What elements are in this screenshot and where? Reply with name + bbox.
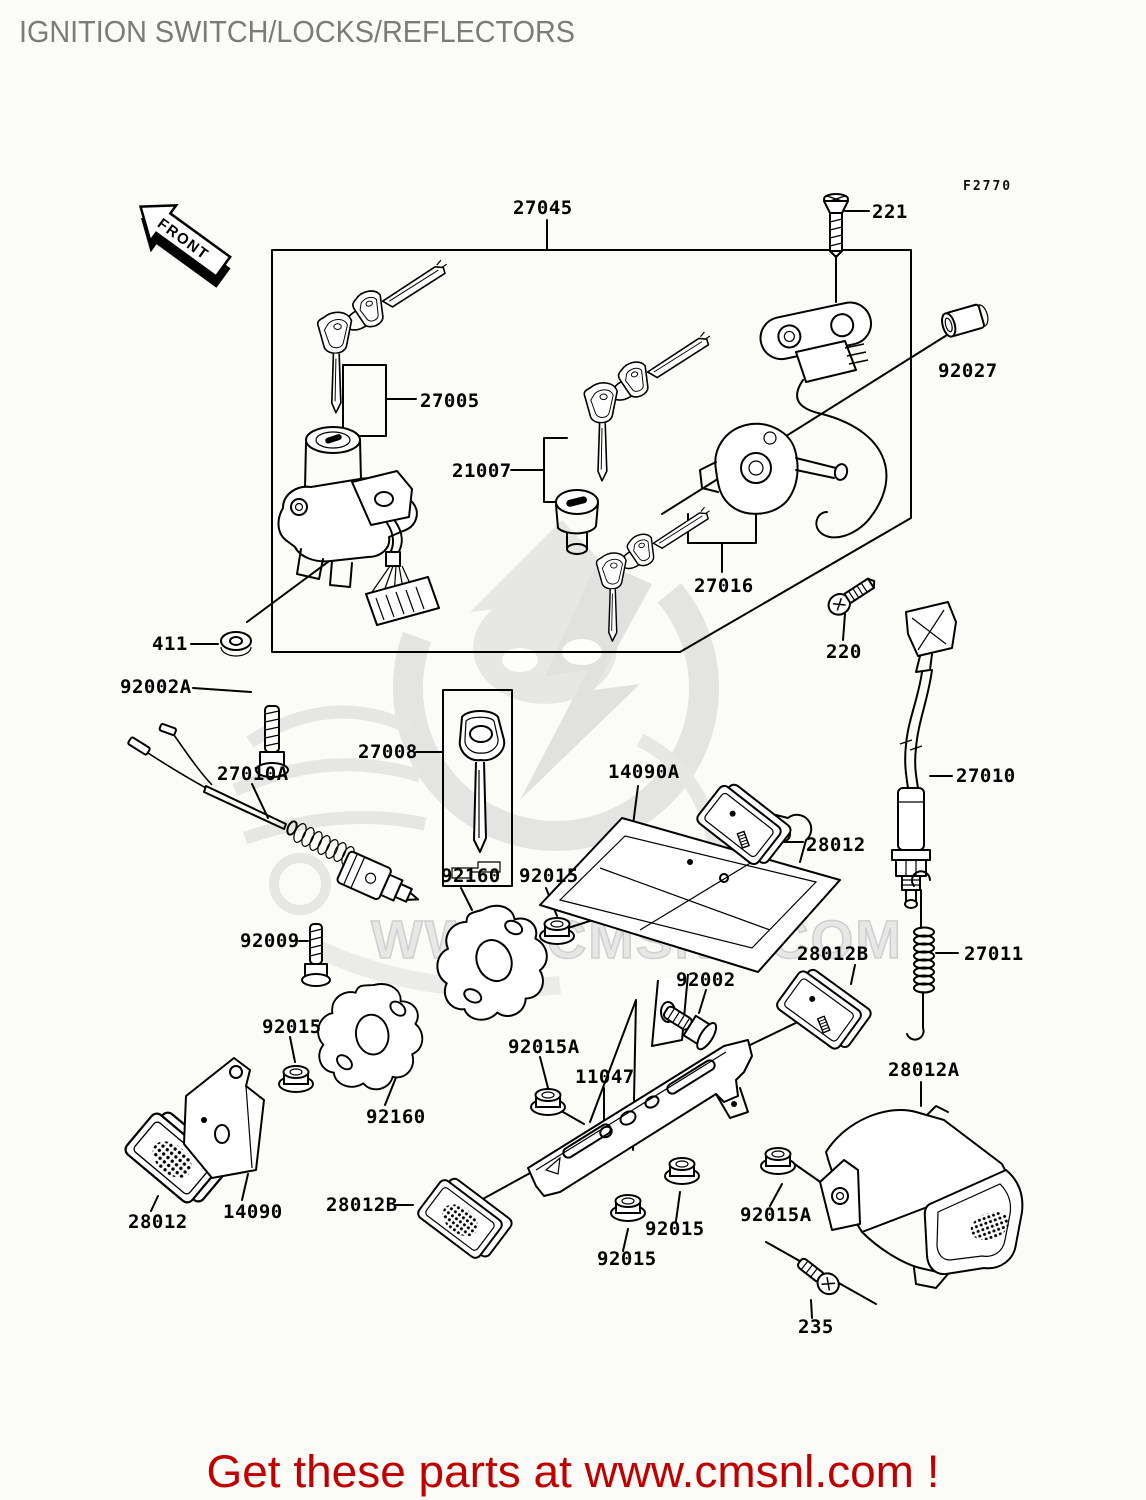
key-set-21007 — [584, 332, 710, 481]
part-label-28012-left[interactable]: 28012 — [128, 1211, 188, 1233]
nut-92015A-left — [531, 1089, 565, 1115]
screw-221 — [824, 194, 848, 257]
nut-92015A-right — [761, 1148, 795, 1174]
part-label-11047[interactable]: 11047 — [575, 1066, 635, 1088]
part-label-92002A[interactable]: 92002A — [120, 676, 192, 698]
part-label-21007[interactable]: 21007 — [452, 460, 512, 482]
part-label-92160-lower[interactable]: 92160 — [366, 1106, 426, 1128]
page-title: IGNITION SWITCH/LOCKS/REFLECTORS — [19, 14, 575, 49]
part-label-92009[interactable]: 92009 — [240, 930, 300, 952]
screw-235 — [794, 1254, 843, 1299]
helmet-lock-27016 — [700, 424, 849, 514]
part-label-411[interactable]: 411 — [152, 633, 188, 655]
parts-diagram: WWW.CMSNL.COM IGNITION SWITCH/LOCKS/REFL… — [0, 0, 1146, 1500]
part-label-92015-mid2[interactable]: 92015 — [597, 1248, 657, 1270]
part-label-27010A[interactable]: 27010A — [217, 763, 289, 785]
part-label-27045[interactable]: 27045 — [513, 197, 573, 219]
part-label-27010[interactable]: 27010 — [956, 765, 1016, 787]
bracket-14090 — [184, 1058, 264, 1178]
reflector-28012B-right — [775, 963, 873, 1055]
part-label-221[interactable]: 221 — [872, 201, 908, 223]
part-label-92015-mid1[interactable]: 92015 — [645, 1218, 705, 1240]
part-label-92015-left[interactable]: 92015 — [262, 1016, 322, 1038]
part-label-92027[interactable]: 92027 — [938, 360, 998, 382]
nut-92015-mid1 — [665, 1158, 699, 1184]
part-label-27016[interactable]: 27016 — [694, 575, 754, 597]
nut-92015-left — [279, 1066, 313, 1092]
ignition-switch-27005 — [278, 427, 439, 625]
part-label-92015A-left[interactable]: 92015A — [508, 1036, 580, 1058]
screw-220 — [825, 573, 880, 619]
footer-link[interactable]: Get these parts at www.cmsnl.com ! — [207, 1446, 940, 1497]
brake-switch-27010 — [892, 602, 956, 908]
part-label-28012-right[interactable]: 28012 — [806, 834, 866, 856]
part-label-92002[interactable]: 92002 — [676, 969, 736, 991]
bushing-92027 — [940, 302, 991, 338]
reflector-housing-28012A — [820, 1106, 1022, 1288]
part-label-27011[interactable]: 27011 — [964, 943, 1024, 965]
part-label-92015A-right[interactable]: 92015A — [740, 1204, 812, 1226]
part-label-28012A[interactable]: 28012A — [888, 1059, 960, 1081]
parts-diagram-page: WWW.CMSNL.COM IGNITION SWITCH/LOCKS/REFL… — [0, 0, 1146, 1500]
part-label-14090A[interactable]: 14090A — [608, 761, 680, 783]
figure-code: F2770 — [963, 179, 1012, 194]
washer-411 — [221, 632, 251, 656]
front-arrow: FRONT — [122, 189, 241, 296]
part-label-28012B-center[interactable]: 28012B — [326, 1194, 398, 1216]
nut-92015-upper — [540, 918, 574, 944]
part-label-92160-upper[interactable]: 92160 — [441, 865, 501, 887]
part-label-92015-upper[interactable]: 92015 — [519, 865, 579, 887]
part-label-28012B-right[interactable]: 28012B — [797, 943, 869, 965]
part-label-14090[interactable]: 14090 — [223, 1201, 283, 1223]
bracket-bar-11047 — [528, 1040, 752, 1196]
reflector-28012B-center — [416, 1172, 514, 1264]
part-label-27008[interactable]: 27008 — [358, 741, 418, 763]
part-label-220[interactable]: 220 — [826, 641, 862, 663]
part-label-235[interactable]: 235 — [798, 1316, 834, 1338]
part-label-27005[interactable]: 27005 — [420, 390, 480, 412]
nut-92015-mid2 — [611, 1195, 645, 1221]
gasket-92160-lower — [313, 978, 428, 1094]
